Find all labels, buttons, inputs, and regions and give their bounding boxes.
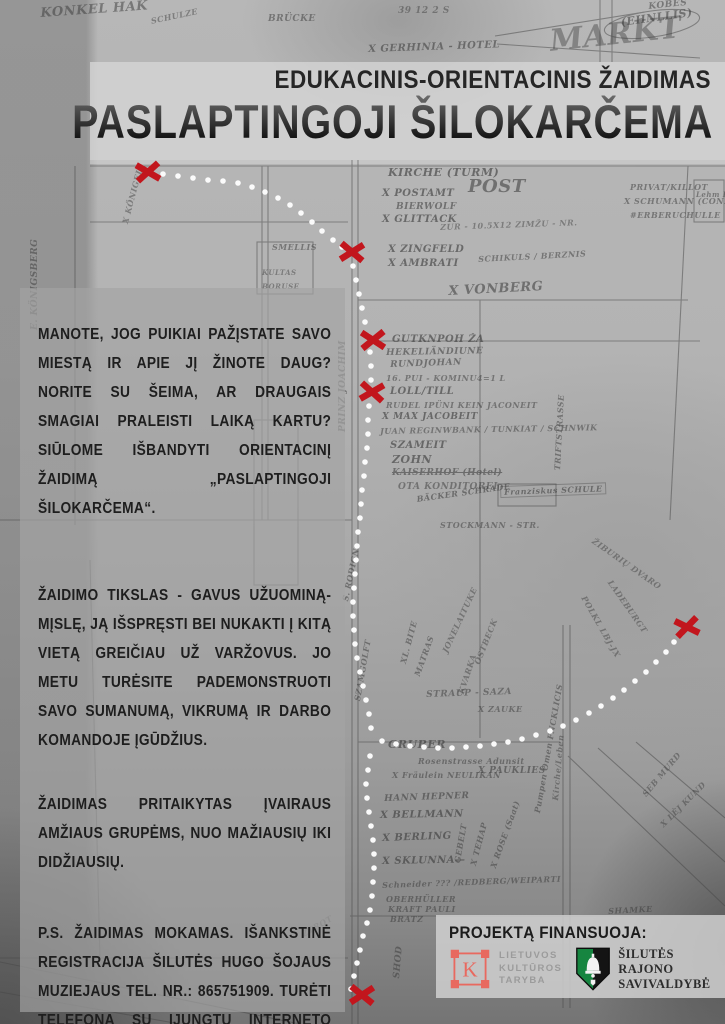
trail-dot <box>351 585 357 591</box>
trail-dot <box>361 473 367 479</box>
trail-dot <box>350 263 356 269</box>
trail-dot <box>421 744 427 750</box>
trail-dot <box>363 697 369 703</box>
trail-dot <box>357 515 363 521</box>
trail-dot <box>370 837 376 843</box>
trail-dot <box>359 305 365 311</box>
trail-dot <box>368 823 374 829</box>
trail-dot <box>350 613 356 619</box>
poster: KONKEL HAKSCHULZEBRÜCKE39 12 2 SKOBĖS(EH… <box>0 0 725 1024</box>
trail-dot <box>369 893 375 899</box>
trail-dot <box>370 879 376 885</box>
culture-council-name-line: KULTŪROS <box>499 963 562 976</box>
trail-dot <box>365 417 371 423</box>
trail-dot <box>365 431 371 437</box>
trail-dot <box>367 753 373 759</box>
trail-dot <box>262 189 268 195</box>
trail-dot <box>643 669 649 675</box>
trail-dot <box>379 738 385 744</box>
municipality-name-line: RAJONO <box>618 962 710 977</box>
municipality-name-line: SAVIVALDYBĖ <box>618 977 710 992</box>
header-subtitle: EDUKACINIS-ORIENTACINIS ŽAIDIMAS <box>275 66 711 94</box>
header-banner: EDUKACINIS-ORIENTACINIS ŽAIDIMAS PASLAPT… <box>90 62 725 160</box>
silute-shield-icon <box>575 946 611 992</box>
trail-dot <box>491 741 497 747</box>
municipality-name-line: ŠILUTĖS <box>618 947 710 962</box>
trail-dot <box>364 445 370 451</box>
funding-heading: PROJEKTĄ FINANSUOJA: <box>449 923 703 943</box>
body-paragraph: ŽAIDIMO TIKSLAS - GAVUS UŽUOMINĄ-MĮSLĘ, … <box>38 581 331 755</box>
culture-council-name: LIETUVOSKULTŪROSTARYBA <box>499 950 562 988</box>
trail-dot <box>547 728 553 734</box>
trail-dot <box>309 219 315 225</box>
trail-dot <box>354 655 360 661</box>
trail-dot <box>463 744 469 750</box>
trail-dot <box>621 687 627 693</box>
trail-dot <box>275 195 281 201</box>
trail-dot <box>220 178 226 184</box>
funding-panel: PROJEKTĄ FINANSUOJA: K LIETUVOSKULTŪROST… <box>436 915 725 998</box>
trail-dot <box>368 725 374 731</box>
trail-dot <box>357 947 363 953</box>
trail-dot <box>355 529 361 535</box>
trail-dot <box>350 599 356 605</box>
trail-dot <box>586 710 592 716</box>
trail-dot <box>287 202 293 208</box>
trail-dot <box>351 973 357 979</box>
trail-dot <box>354 960 360 966</box>
municipality-name: ŠILUTĖSRAJONOSAVIVALDYBĖ <box>618 947 710 992</box>
body-paragraph: MANOTE, JOG PUIKIAI PAŽĮSTATE SAVO MIEST… <box>38 320 331 523</box>
trail-dot <box>362 459 368 465</box>
trail-dot <box>362 319 368 325</box>
trail-dot <box>354 543 360 549</box>
trail-dot <box>319 228 325 234</box>
trail-dot <box>360 683 366 689</box>
culture-council-name-line: LIETUVOS <box>499 950 562 963</box>
funding-logos: K LIETUVOSKULTŪROSTARYBA ŠILUTĖSRAJONOSA… <box>448 946 725 992</box>
checkpoint-x-mark <box>136 163 160 181</box>
trail-dot <box>477 743 483 749</box>
checkpoint-x-mark <box>675 617 699 637</box>
trail-dot <box>519 736 525 742</box>
trail-dot <box>573 717 579 723</box>
culture-council-k-emblem-icon: K <box>448 947 492 991</box>
trail-dot <box>367 907 373 913</box>
trail-dot <box>365 767 371 773</box>
trail-dot <box>352 571 358 577</box>
trail-dot <box>632 678 638 684</box>
trail-dot <box>366 403 372 409</box>
trail-dot <box>505 739 511 745</box>
trail-dot <box>364 795 370 801</box>
trail-dot <box>663 649 669 655</box>
body-paragraph: ŽAIDIMAS PRITAIKYTAS ĮVAIRAUS AMŽIAUS GR… <box>38 790 331 877</box>
trail-dot <box>353 557 359 563</box>
trail-dot <box>356 291 362 297</box>
checkpoint-x-mark <box>362 331 385 348</box>
trail-dot <box>407 743 413 749</box>
culture-council-name-line: TARYBA <box>499 975 562 988</box>
trail-dot <box>533 732 539 738</box>
trail-dot <box>205 177 211 183</box>
trail-dot <box>360 933 366 939</box>
poster-title: PASLAPTINGOJI ŠILOKARČEMA <box>72 93 713 151</box>
checkpoint-x-mark <box>340 243 363 260</box>
checkpoint-x-mark <box>351 986 374 1003</box>
trail-dot <box>235 180 241 186</box>
trail-dot <box>393 741 399 747</box>
trail-dot <box>560 723 566 729</box>
trail-dot <box>353 277 359 283</box>
trail-dot <box>366 809 372 815</box>
trail-dot <box>371 865 377 871</box>
trail-dot <box>368 363 374 369</box>
trail-dot <box>671 639 677 645</box>
checkpoint-x-mark <box>360 383 384 401</box>
trail-dot <box>358 501 364 507</box>
trail-dot <box>330 237 336 243</box>
trail-dot <box>367 349 373 355</box>
trail-dot <box>352 641 358 647</box>
trail-dot <box>357 669 363 675</box>
trail-dot <box>368 377 374 383</box>
trail-dot <box>653 659 659 665</box>
trail-dot <box>298 210 304 216</box>
trail-dot <box>598 703 604 709</box>
trail-dot <box>175 173 181 179</box>
trail-dot <box>366 711 372 717</box>
trail-dot <box>363 781 369 787</box>
trail-dot <box>449 745 455 751</box>
culture-council-letter: K <box>462 957 477 981</box>
trail-dot <box>371 851 377 857</box>
trail-dot <box>351 627 357 633</box>
trail-dot <box>435 745 441 751</box>
trail-dot <box>364 920 370 926</box>
trail-dot <box>610 695 616 701</box>
trail-dot <box>249 184 255 190</box>
body-paragraph: P.S. ŽAIDIMAS MOKAMAS. IŠANKSTINĖ REGIST… <box>38 919 331 1024</box>
trail-dot <box>190 175 196 181</box>
trail-dot <box>359 487 365 493</box>
description-panel: MANOTE, JOG PUIKIAI PAŽĮSTATE SAVO MIEST… <box>20 288 345 1012</box>
